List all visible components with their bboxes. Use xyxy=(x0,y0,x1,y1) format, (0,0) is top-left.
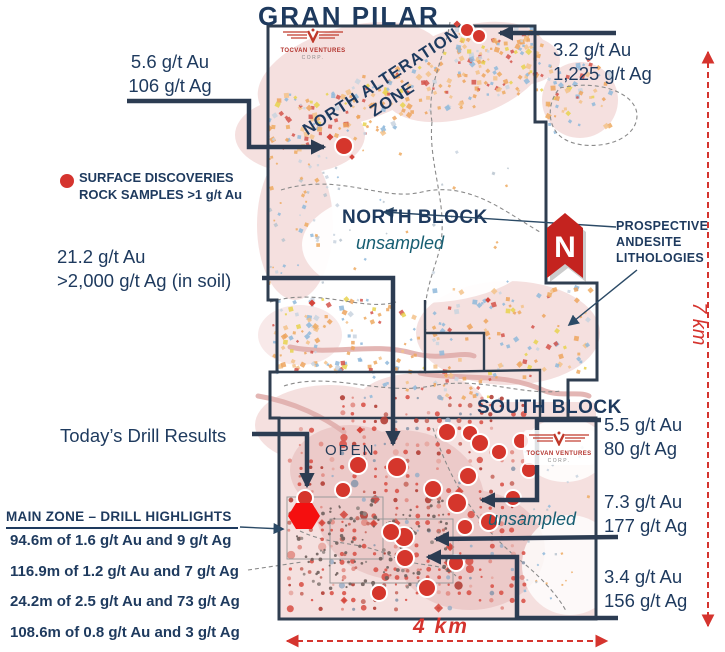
pointer-prospective-south xyxy=(569,270,637,325)
drill-highlight-row: 24.2m of 2.5 g/t Au and 73 g/t Ag xyxy=(10,592,240,611)
north-block-unsampled-label: unsampled xyxy=(356,232,444,255)
annotation-3-2: 3.2 g/t Au 1,225 g/t Ag xyxy=(553,38,652,85)
south-block-unsampled-label: unsampled xyxy=(488,508,576,531)
tocvan-wings-icon xyxy=(281,28,345,43)
todays-drill-results-label: Today’s Drill Results xyxy=(60,424,226,448)
connector-7-3 xyxy=(436,537,618,539)
annotation-7-3: 7.3 g/t Au 177 g/t Ag xyxy=(604,490,687,537)
legend-line1: SURFACE DISCOVERIES xyxy=(79,170,234,185)
tocvan-logo-south: TOCVAN VENTURES CORP. xyxy=(524,430,594,465)
south-block-label: SOUTH BLOCK xyxy=(477,396,622,420)
legend-red-dot-icon xyxy=(60,174,74,188)
drill-highlight-row: 108.6m of 0.8 g/t Au and 3 g/t Ag xyxy=(10,623,240,642)
scale-4km-label: 4 km xyxy=(413,614,469,641)
north-block-label: NORTH BLOCK xyxy=(342,206,488,230)
drill-highlight-row: 116.9m of 1.2 g/t Au and 7 g/t Ag xyxy=(10,562,240,581)
north-arrow-letter: N xyxy=(554,231,576,264)
annotation-5-6: 5.6 g/t Au 106 g/t Ag xyxy=(96,50,244,97)
legend-surface-discoveries: SURFACE DISCOVERIES ROCK SAMPLES >1 g/t … xyxy=(79,170,242,203)
drill-highlight-rows: 94.6m of 1.6 g/t Au and 9 g/t Ag 116.9m … xyxy=(10,531,240,652)
annotation-5-5: 5.5 g/t Au 80 g/t Ag xyxy=(604,413,682,460)
north-arrow-badge: N xyxy=(547,213,586,282)
gran-pilar-map: N GRAN PILAR NORTH ALTERATION ZONE SURFA… xyxy=(0,0,725,652)
main-zone-heading: MAIN ZONE – DRILL HIGHLIGHTS xyxy=(6,508,238,529)
tocvan-logo-north: TOCVAN VENTURES CORP. xyxy=(278,28,348,61)
tocvan-wings-icon xyxy=(527,431,591,446)
tocvan-logo-name: TOCVAN VENTURES xyxy=(524,451,594,458)
annotation-3-4: 3.4 g/t Au 156 g/t Ag xyxy=(604,565,687,612)
prospective-lithologies-label: PROSPECTIVE ANDESITE LITHOLOGIES xyxy=(616,218,708,266)
tocvan-logo-corp: CORP. xyxy=(278,55,348,61)
tocvan-logo-corp: CORP. xyxy=(524,458,594,464)
drill-highlight-row: 94.6m of 1.6 g/t Au and 9 g/t Ag xyxy=(10,531,240,550)
annotation-21-2: 21.2 g/t Au >2,000 g/t Ag (in soil) xyxy=(57,245,231,292)
scale-7km-label: 7 km xyxy=(685,296,711,352)
open-label: OPEN xyxy=(325,441,376,460)
tocvan-logo-name: TOCVAN VENTURES xyxy=(278,48,348,55)
legend-line2: ROCK SAMPLES >1 g/t Au xyxy=(79,187,242,202)
pointer-main-zone xyxy=(240,527,283,529)
